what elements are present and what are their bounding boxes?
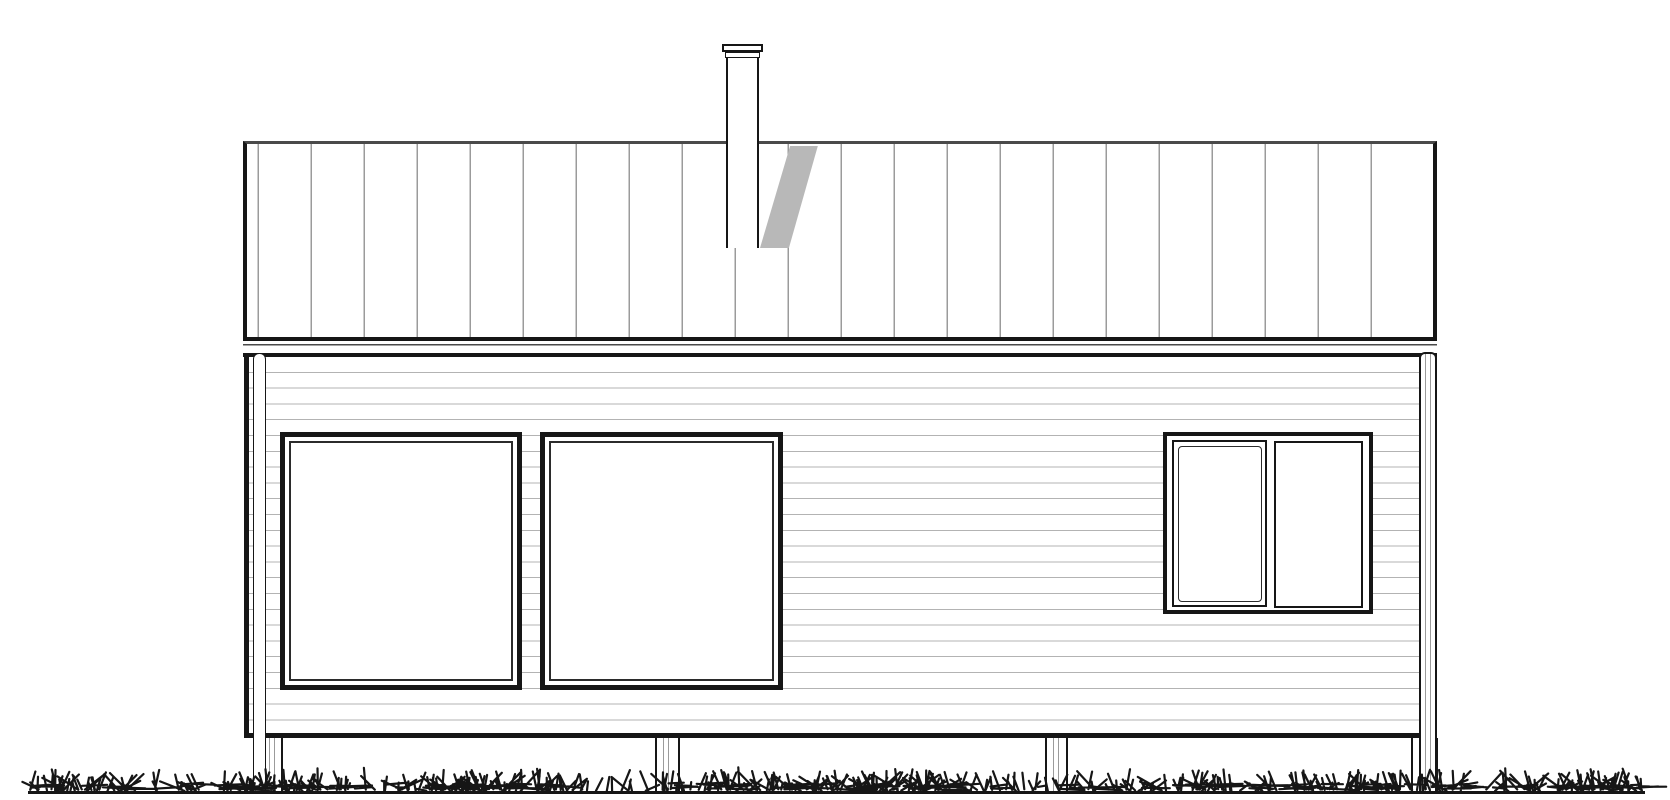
window-fixed-left [280, 432, 522, 690]
foundation-post [1045, 738, 1068, 792]
window-inner-frame [289, 441, 513, 681]
eave-fascia [243, 341, 1437, 357]
window-fixed-middle [540, 432, 783, 690]
roof-panel [243, 141, 1437, 341]
window-right-fixed-sash [1274, 441, 1363, 608]
sash-inner-frame [1178, 446, 1262, 602]
window-inner-frame [549, 441, 774, 681]
window-right-opening-sash [1172, 440, 1267, 607]
chimney-flue [726, 57, 759, 248]
elevation-canvas [0, 0, 1670, 800]
downspout-right [1419, 352, 1437, 792]
chimney-cap-collar [725, 52, 760, 58]
ground-line [28, 791, 1645, 794]
downspout-left [253, 353, 266, 792]
chimney-cap [722, 44, 763, 52]
foundation-post [655, 738, 680, 792]
